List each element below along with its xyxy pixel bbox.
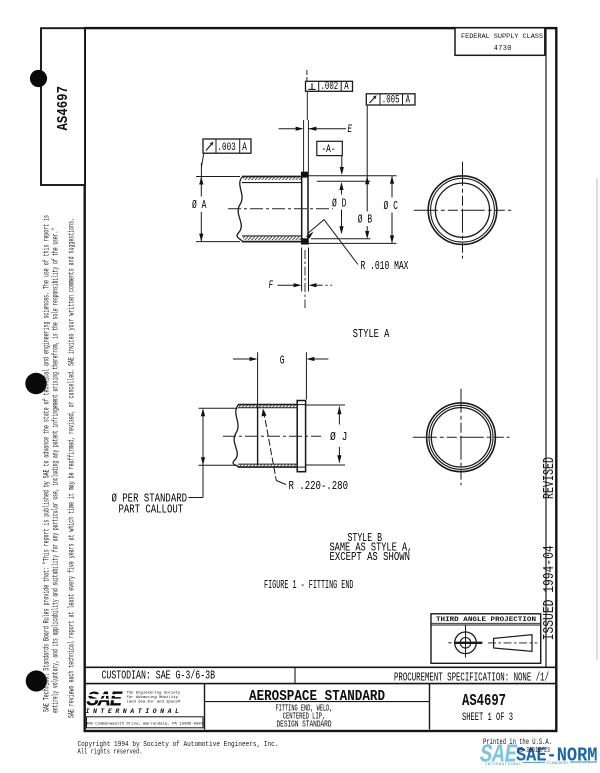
svg-text:SHEET 1 OF 3: SHEET 1 OF 3 — [462, 710, 513, 723]
svg-text:AS4697: AS4697 — [55, 86, 72, 131]
svg-text:4730: 4730 — [494, 45, 512, 53]
svg-text:Ø B: Ø B — [358, 213, 372, 226]
svg-text:Ø C: Ø C — [384, 200, 398, 213]
svg-text:Ø A: Ø A — [192, 198, 206, 211]
svg-text:A: A — [406, 93, 411, 106]
svg-text:PART CALLOUT: PART CALLOUT — [119, 503, 184, 516]
svg-text:Ø D: Ø D — [332, 197, 346, 210]
svg-text:ISSUED 1994-04: ISSUED 1994-04 — [541, 545, 557, 640]
svg-text:.005: .005 — [382, 93, 400, 106]
svg-text:90-3001B/23: 90-3001B/23 — [517, 746, 550, 754]
svg-text:entirely voluntary, and its ap: entirely voluntary, and its applicabilit… — [52, 228, 61, 713]
svg-text:F: F — [269, 279, 274, 292]
svg-text:400 Commonwealth Drive, Warren: 400 Commonwealth Drive, Warrendale, PA 1… — [86, 722, 204, 727]
svg-text:THIRD ANGLE PROJECTION: THIRD ANGLE PROJECTION — [436, 616, 536, 623]
svg-text:A: A — [344, 80, 349, 93]
svg-text:STYLE A: STYLE A — [353, 328, 390, 341]
svg-text:REVISED: REVISED — [541, 457, 557, 499]
svg-text:.002: .002 — [321, 80, 339, 93]
svg-text:A: A — [242, 141, 247, 154]
svg-text:Land Sea Air and Space®: Land Sea Air and Space® — [127, 700, 181, 705]
svg-text:The Engineering Society: The Engineering Society — [127, 691, 181, 696]
svg-text:R .010 MAX: R .010 MAX — [361, 260, 409, 273]
svg-text:INTERNATIONAL: INTERNATIONAL — [86, 708, 180, 715]
svg-text:FEDERAL SUPPLY CLASS: FEDERAL SUPPLY CLASS — [461, 33, 543, 41]
svg-text:PROCUREMENT SPECIFICATION: N: PROCUREMENT SPECIFICATION: NONE /1/ — [394, 671, 549, 685]
svg-text:R .220-.280: R .220-.280 — [289, 479, 349, 492]
svg-text:Ø J: Ø J — [330, 430, 348, 443]
svg-text:AS4697: AS4697 — [462, 691, 506, 710]
svg-text:SAE reviews each technical rep: SAE reviews each technical report at lea… — [68, 218, 77, 718]
svg-text:AEROSPACE STANDARD: AEROSPACE STANDARD — [249, 688, 385, 705]
svg-text:E: E — [348, 123, 353, 136]
svg-text:EXCEPT AS SHOWN: EXCEPT AS SHOWN — [330, 551, 411, 564]
svg-text:-A-: -A- — [322, 143, 336, 156]
svg-text:FIGURE 1 - FITTING END: FIGURE 1 - FITTING END — [264, 578, 354, 591]
svg-text:For Advancing Mobility: For Advancing Mobility — [127, 695, 179, 700]
svg-text:.003: .003 — [218, 141, 236, 154]
svg-text:G: G — [280, 354, 285, 367]
svg-text:All rights reserved.: All rights reserved. — [78, 749, 143, 757]
svg-text:CUSTODIAN: SAE G-3/6-3B: CUSTODIAN: SAE G-3/6-3B — [102, 669, 216, 683]
svg-text:DESIGN STANDARD: DESIGN STANDARD — [277, 720, 332, 730]
svg-text:STANDARDS: STANDARDS — [547, 762, 569, 766]
svg-text:INTERNATIONAL: INTERNATIONAL — [485, 763, 521, 767]
